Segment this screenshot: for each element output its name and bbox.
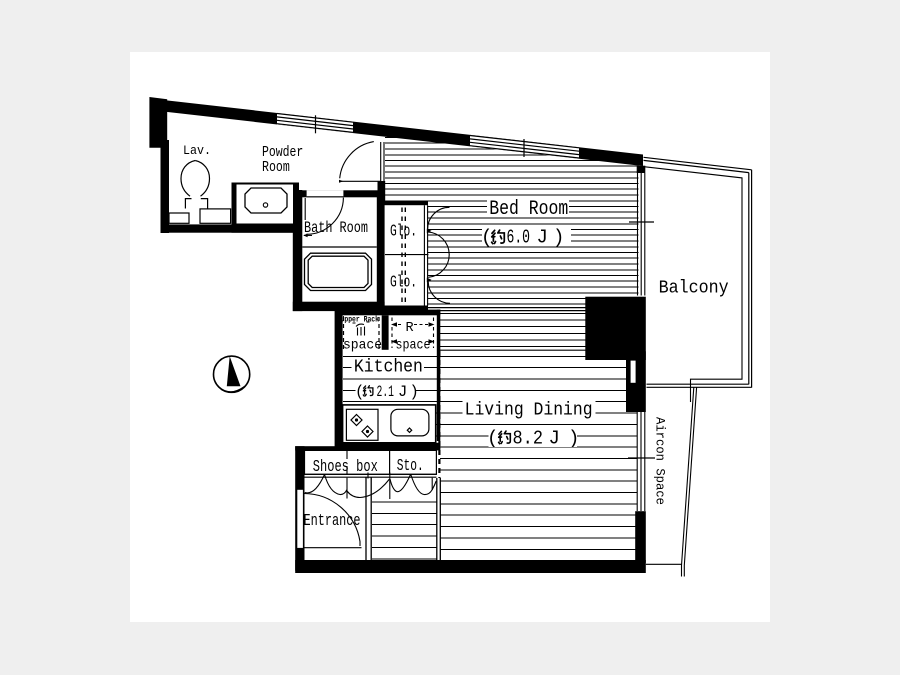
svg-text:): ): [410, 383, 419, 401]
svg-text:(: (: [481, 227, 492, 249]
svg-text:Room: Room: [262, 159, 290, 176]
svg-text:J: J: [549, 427, 560, 449]
svg-text:Kitchen: Kitchen: [354, 357, 423, 377]
svg-text:Sto.: Sto.: [397, 457, 424, 476]
svg-text:(: (: [487, 427, 498, 449]
svg-text:Shoes box: Shoes box: [313, 458, 378, 477]
svg-text:Glo.: Glo.: [390, 223, 417, 242]
svg-text:Living Dining: Living Dining: [465, 400, 593, 420]
svg-text:R: R: [406, 321, 414, 336]
svg-text:Entrance: Entrance: [304, 512, 361, 531]
svg-text:): ): [568, 427, 579, 449]
svg-text:8.2: 8.2: [513, 427, 544, 449]
svg-text:2.1: 2.1: [377, 383, 395, 401]
svg-text:Balcony: Balcony: [659, 278, 729, 298]
svg-text:6.0: 6.0: [507, 227, 531, 249]
svg-text:space: space: [396, 337, 431, 353]
svg-text:): ): [553, 227, 564, 249]
svg-text:J: J: [398, 383, 407, 401]
svg-text:Lav.: Lav.: [183, 143, 211, 158]
svg-text:Bed Room: Bed Room: [489, 198, 568, 221]
svg-text:Glo.: Glo.: [390, 274, 417, 293]
svg-text:Aircon Space: Aircon Space: [653, 417, 668, 505]
svg-text:Bath Room: Bath Room: [304, 219, 368, 237]
svg-text:J: J: [537, 227, 548, 249]
svg-text:(: (: [355, 383, 364, 401]
svg-text:space: space: [343, 337, 382, 353]
svg-text:Upper Rack: Upper Rack: [341, 315, 380, 324]
